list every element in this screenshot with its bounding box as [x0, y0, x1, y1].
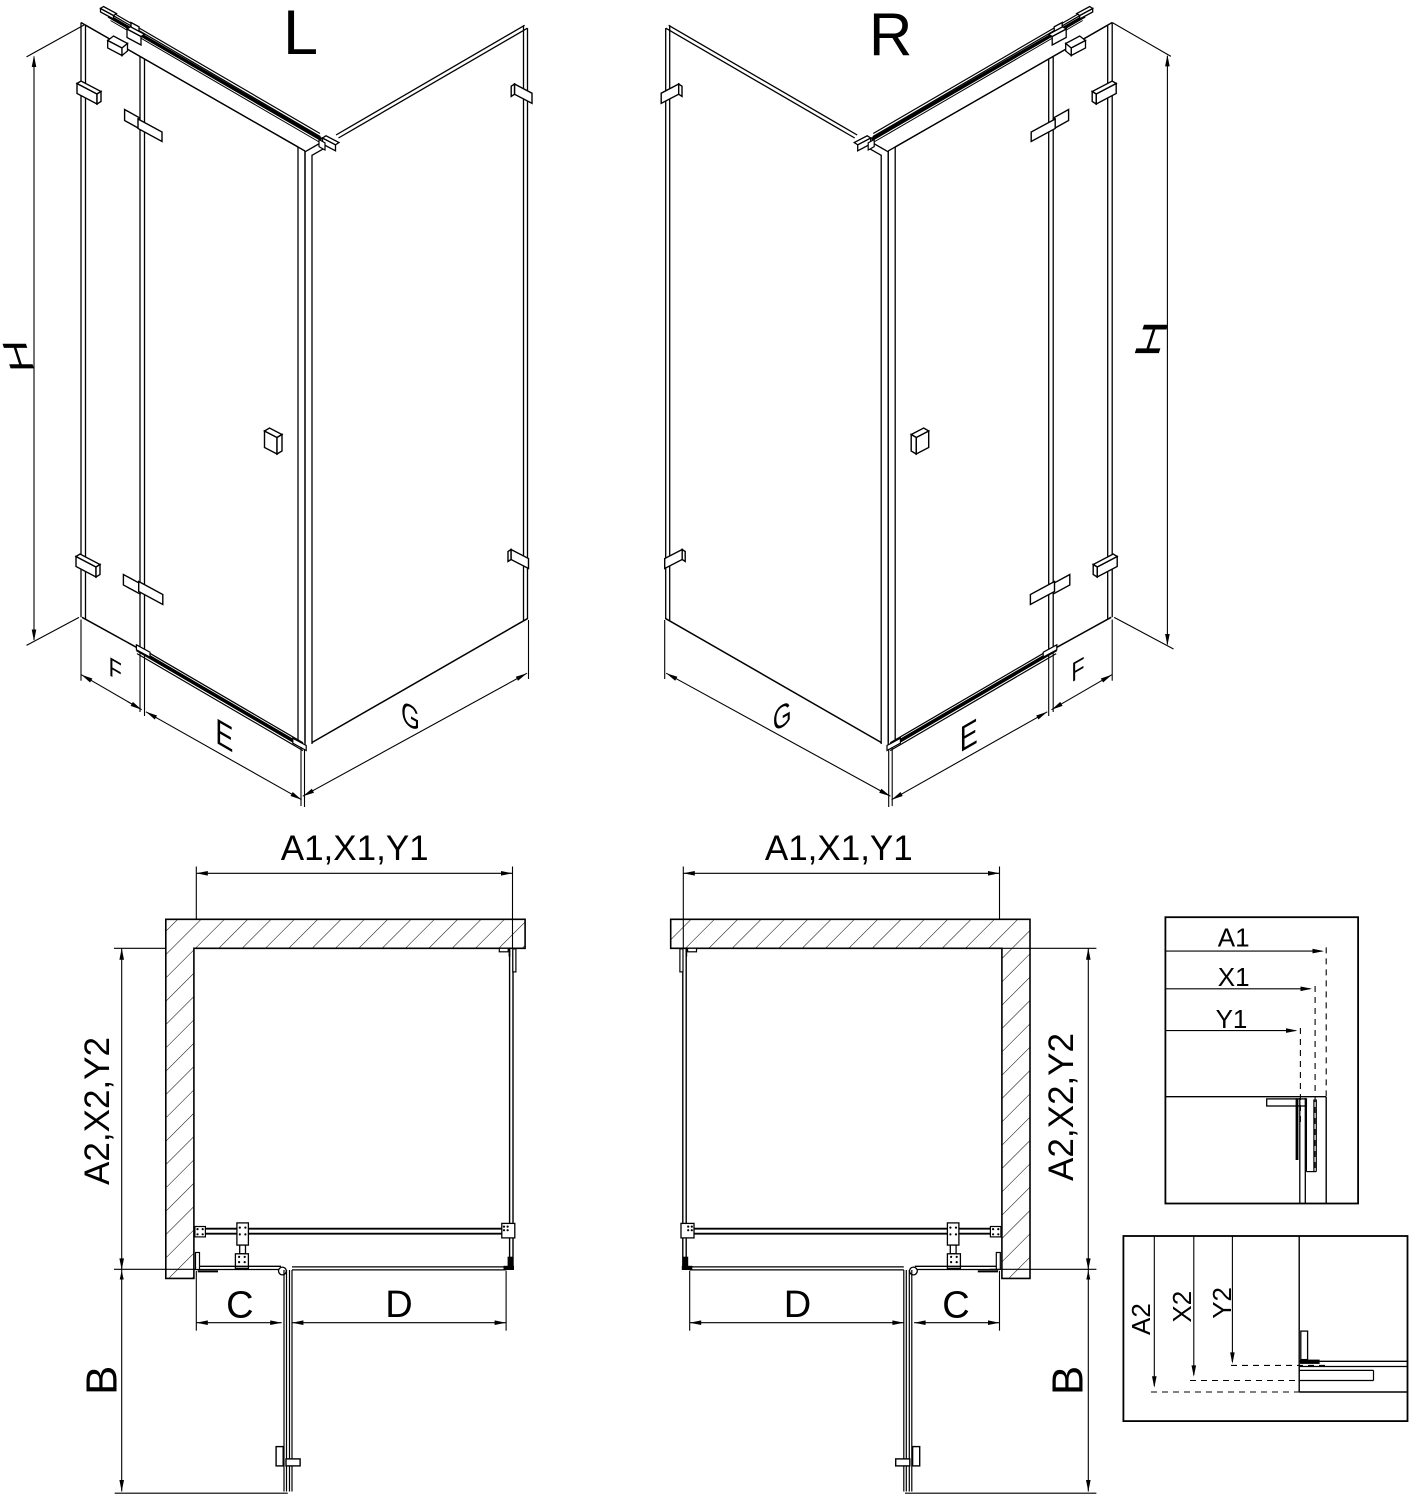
svg-text:G: G: [401, 694, 420, 740]
svg-text:A2,X2,Y2: A2,X2,Y2: [1042, 1033, 1081, 1181]
svg-text:Y2: Y2: [1207, 1287, 1237, 1319]
svg-text:E: E: [215, 711, 233, 761]
svg-text:X2: X2: [1167, 1291, 1197, 1323]
svg-text:C: C: [942, 1285, 969, 1327]
svg-text:G: G: [773, 694, 792, 740]
svg-text:B: B: [78, 1366, 127, 1395]
svg-text:L: L: [283, 0, 318, 68]
svg-text:A1,X1,Y1: A1,X1,Y1: [765, 829, 913, 868]
svg-text:A1,X1,Y1: A1,X1,Y1: [281, 829, 429, 868]
svg-text:F: F: [1071, 650, 1084, 689]
svg-text:H: H: [1126, 321, 1177, 358]
svg-text:D: D: [385, 1284, 412, 1326]
svg-text:D: D: [784, 1284, 811, 1326]
svg-text:F: F: [109, 650, 122, 689]
svg-text:R: R: [869, 2, 912, 69]
svg-text:B: B: [1044, 1366, 1093, 1395]
svg-text:X1: X1: [1218, 962, 1250, 992]
svg-text:A1: A1: [1218, 922, 1250, 952]
svg-text:A2: A2: [1126, 1303, 1156, 1335]
svg-text:C: C: [226, 1285, 253, 1327]
svg-text:H: H: [0, 340, 43, 372]
svg-text:Y1: Y1: [1216, 1004, 1248, 1034]
svg-text:E: E: [960, 711, 978, 761]
svg-text:A2,X2,Y2: A2,X2,Y2: [78, 1037, 117, 1185]
